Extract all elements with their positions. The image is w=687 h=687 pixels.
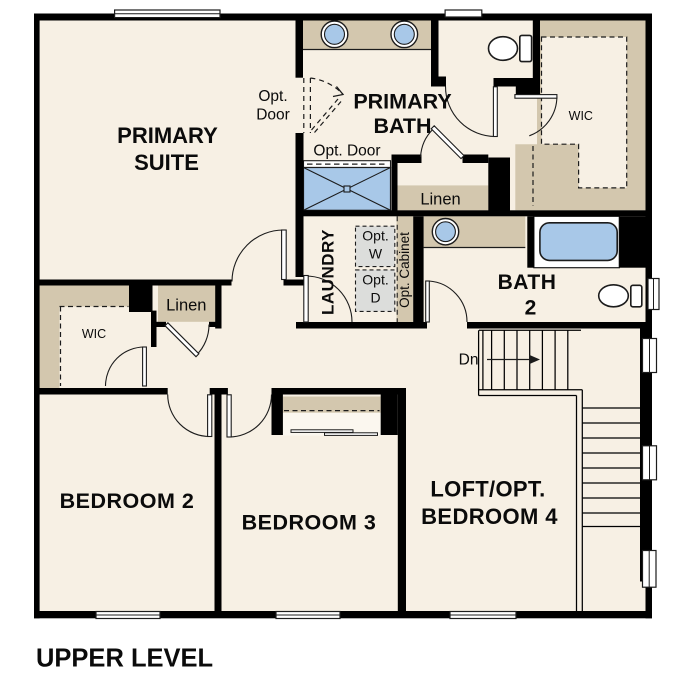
svg-text:BEDROOM 2: BEDROOM 2 [60, 489, 195, 513]
svg-text:BATH: BATH [373, 114, 431, 138]
svg-text:Opt.: Opt. [362, 272, 388, 288]
svg-text:Linen: Linen [166, 297, 206, 315]
svg-text:Opt. Door: Opt. Door [313, 143, 380, 160]
svg-text:Opt.: Opt. [362, 228, 388, 244]
svg-text:D: D [370, 290, 380, 306]
svg-text:Opt. Cabinet: Opt. Cabinet [397, 232, 412, 308]
svg-text:Dn: Dn [459, 352, 479, 369]
svg-text:WIC: WIC [82, 327, 106, 341]
svg-text:WIC: WIC [569, 109, 593, 123]
svg-text:Linen: Linen [420, 191, 460, 209]
svg-text:PRIMARY: PRIMARY [117, 123, 218, 148]
svg-text:2: 2 [525, 297, 537, 320]
svg-text:W: W [369, 246, 383, 262]
svg-text:SUITE: SUITE [134, 150, 199, 175]
svg-text:UPPER LEVEL: UPPER LEVEL [36, 645, 213, 673]
svg-text:BEDROOM 4: BEDROOM 4 [421, 504, 558, 529]
svg-text:Door: Door [256, 107, 290, 124]
svg-text:LAUNDRY: LAUNDRY [319, 229, 338, 315]
svg-text:BATH: BATH [498, 271, 557, 294]
svg-text:BEDROOM 3: BEDROOM 3 [242, 511, 377, 535]
svg-text:PRIMARY: PRIMARY [353, 90, 451, 114]
svg-text:LOFT/OPT.: LOFT/OPT. [430, 477, 545, 502]
svg-text:Opt.: Opt. [258, 88, 287, 105]
